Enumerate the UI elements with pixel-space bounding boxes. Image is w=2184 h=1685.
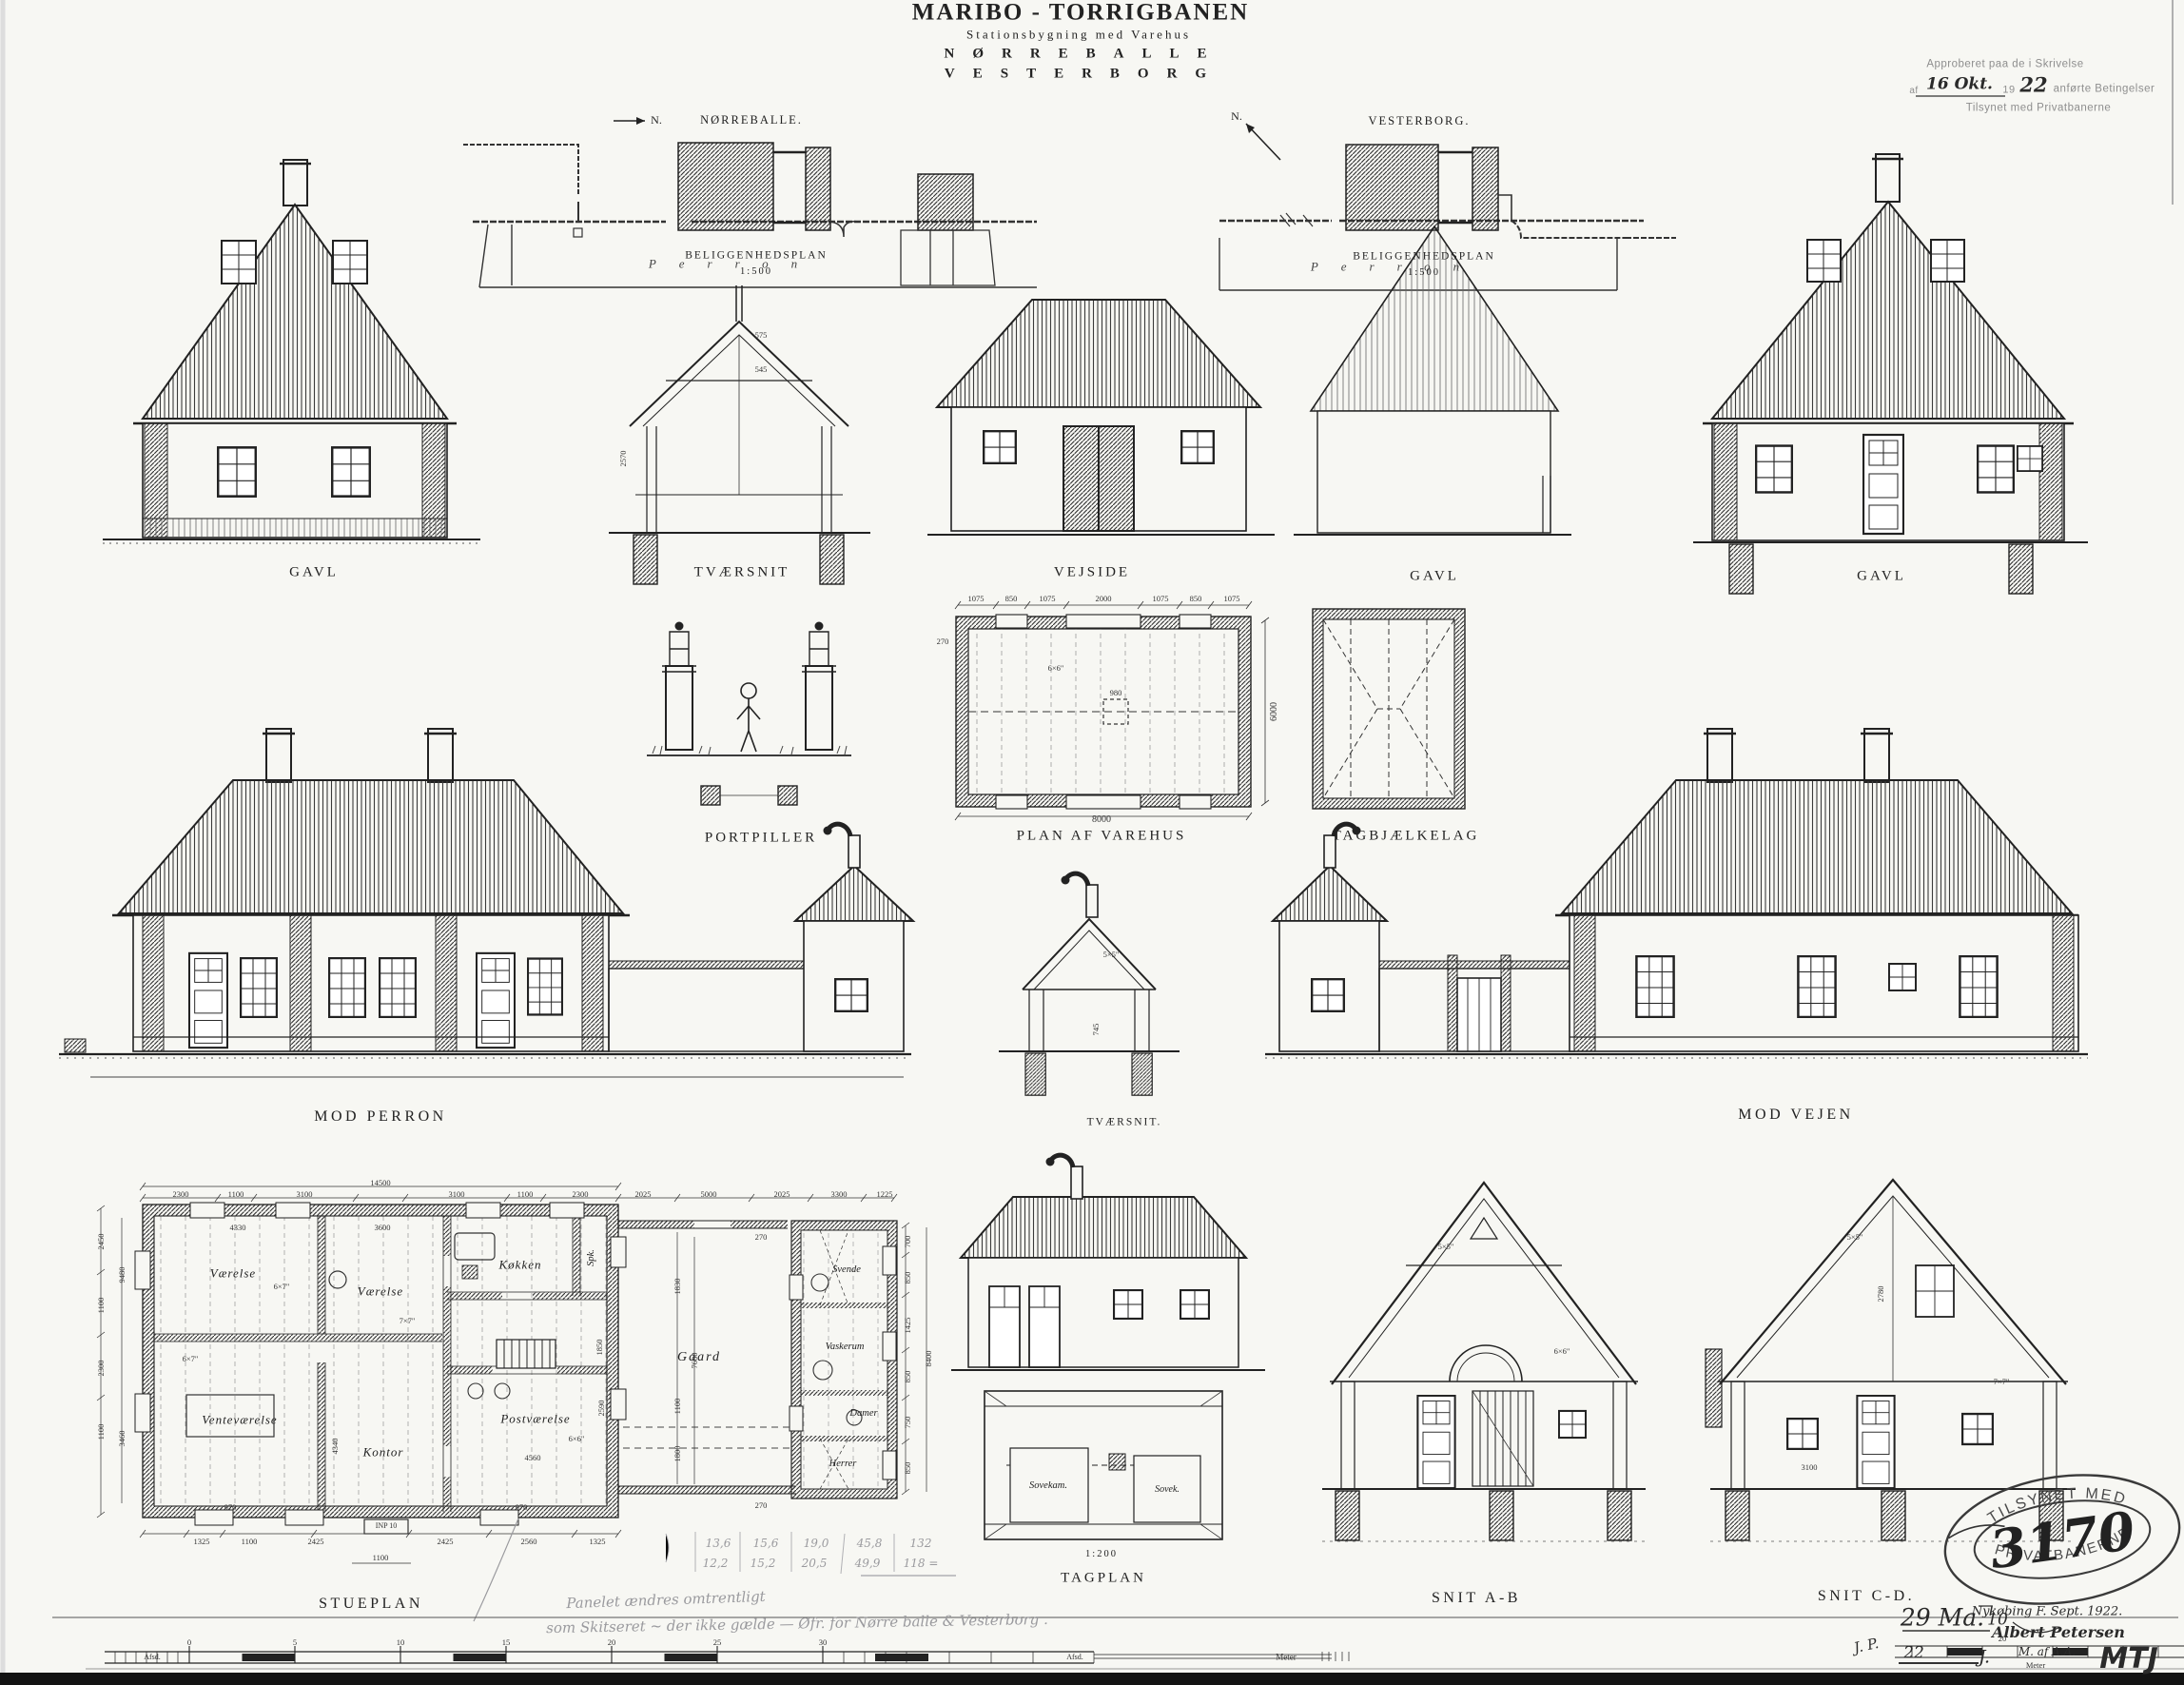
dim-vp-right: 6000 [1270,702,1279,721]
scalebar-num-10: 10 [397,1638,405,1647]
dim-sp-court-2: 1100 [673,1399,682,1415]
caption-stueplan: STUEPLAN [319,1597,423,1612]
beam-label-inp10: INP 10 [376,1522,398,1530]
dim-sp-in-5: 4560 [525,1454,541,1462]
caption-mod-vejen: MOD VEJEN [1738,1107,1853,1123]
scalebar-unit: Meter [1276,1654,1297,1662]
dim-sp-left-2: 2300 [97,1361,106,1377]
dim-sp-bot-2: 2425 [308,1538,324,1546]
pencil-num-r1-3: 45,8 [857,1538,883,1549]
scalebar-num-20: 20 [608,1638,616,1647]
dim-sp-right-5: 850 [904,1462,912,1475]
pencil-num-r1-2: 19,0 [804,1538,829,1549]
signature-org: M. af A.A. [2018,1646,2076,1657]
dim-sp-left-1: 1100 [97,1298,106,1314]
pencil-num-r1-1: 15,6 [753,1538,779,1549]
dim-sp-in-6: 970 [224,1503,237,1512]
tagplan-scale: 1:200 [1085,1550,1118,1560]
tagplan-room-right: Sovek. [1155,1485,1180,1495]
dim-sp-in-4: 2590 [597,1401,606,1417]
hand-note-j: J. [1979,1649,1990,1667]
dim-sp-wing-0: 2025 [635,1190,652,1199]
approval-prefix: af [1909,87,1918,96]
caption-tagplan: TAGPLAN [1061,1572,1146,1586]
dim-sp-bot-4: 2560 [521,1538,537,1546]
hand-note-22: 22 [1903,1646,1924,1662]
sheet-title: MARIBO - TORRIGBANEN [912,1,1249,25]
dim-vp-4: 1075 [1153,595,1169,603]
scalebar-afsd-right: Afsd. [1066,1654,1083,1661]
north-label-right: N. [1231,110,1242,122]
dim-sp-top-5: 2300 [573,1190,589,1199]
dim-vp-1: 850 [1005,595,1018,603]
dim-cd-3100: 3100 [1802,1463,1818,1472]
approval-year-print: 19 [2002,86,2015,96]
scalebar-num-15: 15 [502,1638,511,1647]
room-spisekammer: Spk. [587,1249,597,1266]
caption-gavl-1: GAVL [289,566,339,580]
tagplan-room-left: Sovekam. [1029,1481,1067,1492]
scalebar-num-25: 25 [713,1638,722,1647]
dim-sp-top-2: 3100 [297,1190,313,1199]
beam-mark-2: 7×7" [400,1317,416,1325]
dim-vp-beam: 6×6" [1048,664,1064,673]
scalebar-num-30: 30 [819,1638,828,1647]
room-kontor: Kontor [363,1446,404,1459]
room-koekken: Køkken [499,1259,542,1271]
dim-sp-top-0: 2300 [173,1190,189,1199]
dim-sp-right-2: 1425 [904,1318,912,1334]
dim-sp-bot-1: 1100 [242,1538,258,1546]
dim-sp-total: 14500 [370,1179,390,1187]
dim-sp-top-1: 1100 [228,1190,244,1199]
approval-hand-date: 16 Okt. [1926,77,1993,93]
dim-sp-court-1: 7680 [691,1353,699,1369]
pencil-num-r2-2: 20,5 [802,1558,828,1569]
dim-sp-bot-0: 1325 [194,1538,210,1546]
dim-545: 545 [755,365,768,374]
dim-sp-court-0: 1830 [673,1279,682,1295]
dim-sp-in-7: 970 [516,1503,528,1512]
dim-sp-wing-2: 2025 [774,1190,790,1199]
drawing-sheet: TILSYNET MED PRIVATBANERNE 3170 [0,0,2184,1685]
dim-vp-3: 2000 [1096,595,1112,603]
dim-sp-left-in-1: 3460 [118,1431,127,1447]
dim-575: 575 [755,331,768,340]
beam-mark-0: 6×7" [274,1283,290,1291]
pencil-num-r1-0: 13,6 [706,1538,731,1549]
caption-portpiller: PORTPILLER [705,832,817,846]
dim-vp-bottom: 8000 [1092,815,1111,825]
sheet-subtitle: Stationsbygning med Varehus [966,29,1191,41]
dim-sp-wing-4: 1225 [877,1190,893,1199]
dim-cd-2780: 2780 [1877,1286,1885,1303]
scalebar-right-num: 20 [1999,1635,2007,1643]
sheet-station-2: VESTERBORG [945,68,1224,82]
caption-tvaersnit-small: TVÆRSNIT. [1087,1117,1162,1128]
dim-cd-5x5: 5×5" [1847,1233,1863,1242]
pencil-num-r1-4: 132 [910,1538,932,1549]
dim-sp-court-3: 1800 [673,1446,682,1462]
dim-ab-6x6: 6×6" [1554,1347,1570,1356]
caption-tagbjaelkelag: TAGBJÆLKELAG [1333,830,1480,844]
labels-layer: MARIBO - TORRIGBANEN Stationsbygning med… [0,0,2184,1685]
dim-ab-5x5: 5×5" [1438,1243,1454,1251]
caption-snit-ab: SNIT A-B [1432,1591,1521,1606]
room-postvaerelse: Postværelse [500,1413,570,1425]
approval-line-1: Approberet paa de i Skrivelse [1926,59,2083,70]
dim-sp-right-0: 700 [904,1236,912,1248]
site-name-vesterborg: VESTERBORG. [1368,115,1470,127]
caption-mod-perron: MOD PERRON [314,1109,446,1125]
site-scale-right: 1:500 [1408,268,1440,279]
caption-gavl-3: GAVL [1857,570,1906,584]
room-vaerelse-2: Værelse [358,1285,403,1298]
dim-sp-left-3: 1100 [97,1424,106,1440]
dim-vp-2: 1075 [1040,595,1056,603]
site-caption-left: BELIGGENHEDSPLAN [685,250,828,262]
pencil-note-1: Panelet ændres omtrentligt [566,1590,766,1611]
dim-sp-bot-3: 2425 [438,1538,454,1546]
dim-sp-right-4: 750 [904,1417,912,1429]
pencil-num-r2-1: 15,2 [751,1558,776,1569]
dim-2570: 2570 [619,451,628,467]
dim-sp-in-2: 4340 [331,1439,340,1455]
site-name-noerreballe: NØRREBALLE. [700,114,803,127]
caption-vejside: VEJSIDE [1054,566,1130,580]
dim-vp-6: 1075 [1224,595,1240,603]
caption-snit-cd: SNIT C-D. [1818,1589,1915,1604]
room-vaerelse-1: Værelse [210,1267,256,1280]
caption-gavl-2: GAVL [1410,570,1459,584]
dim-sp-1100b: 1100 [373,1554,389,1562]
hand-note-10: 10 [1987,1613,2008,1629]
dim-sp-top-3: 3100 [449,1190,465,1199]
scalebar-afsd-left: Afsd. [144,1654,161,1661]
dim-sp-in-1: 3600 [375,1224,391,1232]
dim-sp-left-0: 2450 [97,1234,106,1250]
pencil-note-2: som Skitseret ~ der ikke gælde — Øfr. fo… [546,1613,1048,1636]
room-damer: Damer [849,1409,877,1420]
room-gaard: Gaard [677,1351,721,1364]
dim-vp-left: 270 [937,637,949,646]
scalebar-num-5: 5 [293,1638,297,1647]
dim-sp-right-1: 850 [904,1272,912,1284]
room-vaskerum: Vaskerum [826,1342,865,1353]
beam-mark-1: 6×7" [183,1355,199,1363]
hand-initials: J. P. [1853,1636,1881,1656]
dim-ts-5x5: 5×5" [1103,950,1120,959]
dim-vp-post: 980 [1110,689,1122,697]
dim-vp-5: 850 [1190,595,1202,603]
approval-hand-year: 22 [2019,75,2047,95]
dim-sp-in-3: 1850 [595,1340,604,1356]
sheet-station-1: NØRREBALLE [944,48,1224,62]
approval-line-3: Tilsynet med Privatbanerne [1966,103,2112,114]
room-ventevaerelse: Venteværelse [202,1414,277,1426]
dim-sp-270b: 270 [755,1501,768,1510]
dim-sp-bot-5: 1325 [590,1538,606,1546]
dim-sp-right-total: 8400 [925,1351,933,1367]
dim-sp-top-4: 1100 [517,1190,534,1199]
site-caption-right: BELIGGENHEDSPLAN [1353,251,1495,263]
caption-plan-af-varehus: PLAN AF VAREHUS [1017,830,1187,844]
dim-sp-in-0: 4330 [230,1224,246,1232]
caption-tvaersnit: TVÆRSNIT [694,566,790,580]
beam-mark-3: 6×6" [569,1435,585,1443]
dim-vp-0: 1075 [968,595,985,603]
dim-sp-wing-3: 3300 [831,1190,848,1199]
signature-name: Albert Petersen [1992,1625,2125,1640]
room-svende: Svende [832,1265,861,1276]
dim-cd-7x7: 7×7" [1994,1378,2010,1386]
pencil-num-r2-3: 49,9 [855,1558,881,1569]
hand-note-29: 29 Ma. [1901,1606,1984,1630]
north-label-left: N. [651,114,662,126]
pencil-num-r2-4: 118 = [904,1558,939,1569]
dim-ts-745: 745 [1092,1024,1101,1036]
dim-sp-left-in-0: 9480 [118,1267,127,1283]
dim-sp-270a: 270 [755,1233,768,1242]
dim-sp-right-3: 850 [904,1371,912,1383]
dim-sp-wing-1: 5000 [701,1190,717,1199]
room-herrer: Herrer [829,1460,857,1470]
scalebar-right-unit: Meter [2026,1661,2045,1670]
scalebar-num-0: 0 [187,1638,191,1647]
pencil-num-r2-0: 12,2 [703,1558,729,1569]
site-scale-left: 1:500 [740,267,772,278]
corner-mark-mtj: MTJ [2099,1645,2157,1674]
approval-line-2: anførte Betingelser [2054,84,2155,95]
